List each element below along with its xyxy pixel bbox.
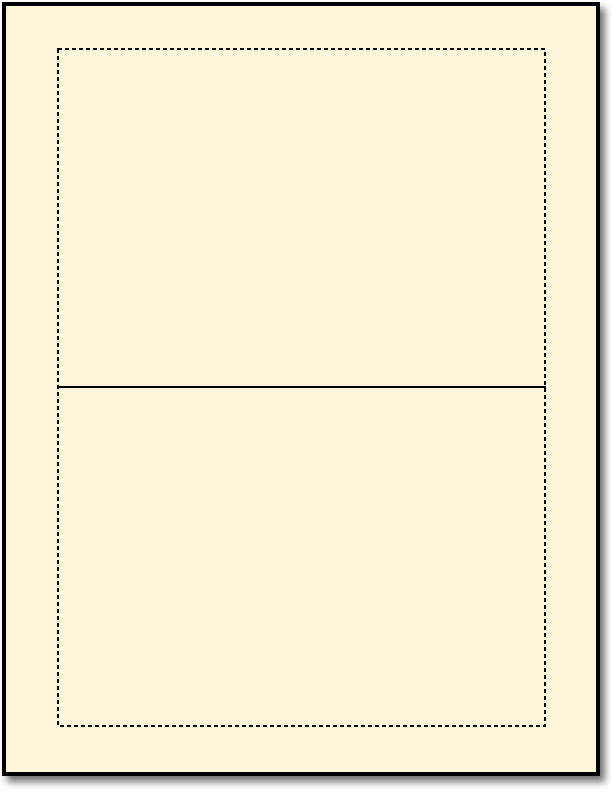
page-canvas bbox=[0, 0, 612, 792]
paper-sheet bbox=[2, 2, 600, 776]
fold-line bbox=[57, 386, 546, 388]
